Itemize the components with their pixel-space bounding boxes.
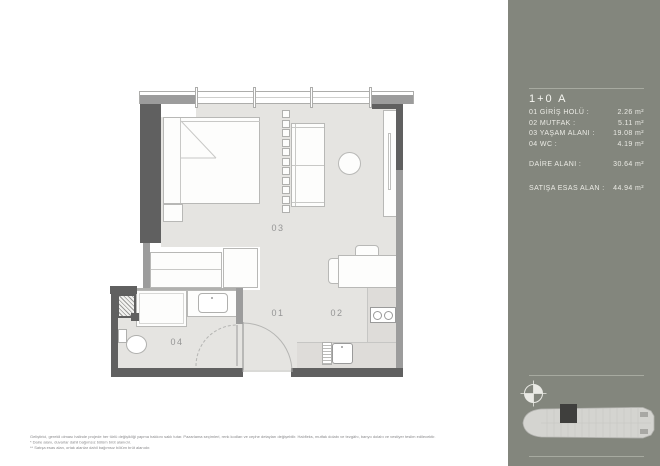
room-area-value: 4.19 m² — [617, 141, 644, 148]
room-label-02: 02 — [325, 308, 349, 318]
room-area-value: 5.11 m² — [618, 120, 644, 127]
room-area-value: 2.26 m² — [617, 109, 644, 116]
footnotes: Geliştirici, gerekli olması halinde proj… — [30, 434, 500, 451]
room-area-row: 04 WC : 4.19 m² — [529, 141, 644, 148]
sidebar-divider-top — [529, 88, 644, 89]
floor-plan-sheet: { "sidebar": { "title": "1+0 A", "rooms"… — [0, 0, 660, 466]
room-area-label: 01 GİRİŞ HOLÜ : — [529, 109, 589, 116]
sidebar-divider-bottom — [529, 456, 644, 457]
total-area-row: SATIŞA ESAS ALAN : 44.94 m² — [529, 185, 644, 192]
total-area-label: DAİRE ALANI : — [529, 161, 581, 168]
building-key-plan — [521, 402, 656, 444]
room-label-01: 01 — [266, 308, 290, 318]
room-label-04: 04 — [165, 337, 189, 347]
total-area-row: DAİRE ALANI : 30.64 m² — [529, 161, 644, 168]
room-area-row: 02 MUTFAK : 5.11 m² — [529, 120, 644, 127]
bath-door-swing-arc — [196, 325, 237, 366]
unit-type-title: 1+0 A — [529, 93, 567, 105]
entry-door-swing-arc — [243, 323, 292, 372]
room-label-03: 03 — [266, 223, 290, 233]
room-area-row: 03 YAŞAM ALANI : 19.08 m² — [529, 130, 644, 137]
info-sidebar: 1+0 A 01 GİRİŞ HOLÜ : 2.26 m² 02 MUTFAK … — [508, 0, 660, 466]
unit-location-highlight — [560, 404, 577, 423]
room-area-row: 01 GİRİŞ HOLÜ : 2.26 m² — [529, 109, 644, 116]
floor-plan: 01 02 03 04 — [0, 0, 508, 466]
total-area-value: 44.94 m² — [613, 185, 644, 192]
footnote-line: ** Satışa esas alan, ortak alanlar dahil… — [30, 445, 500, 451]
total-area-label: SATIŞA ESAS ALAN : — [529, 185, 605, 192]
room-area-label: 02 MUTFAK : — [529, 120, 575, 127]
room-area-label: 03 YAŞAM ALANI : — [529, 130, 595, 137]
room-area-value: 19.08 m² — [613, 130, 644, 137]
doors-overlay — [0, 0, 508, 466]
room-area-label: 04 WC : — [529, 141, 557, 148]
total-area-value: 30.64 m² — [613, 161, 644, 168]
bed-fold-diagonal — [181, 121, 216, 158]
sidebar-divider-middle — [529, 375, 644, 376]
